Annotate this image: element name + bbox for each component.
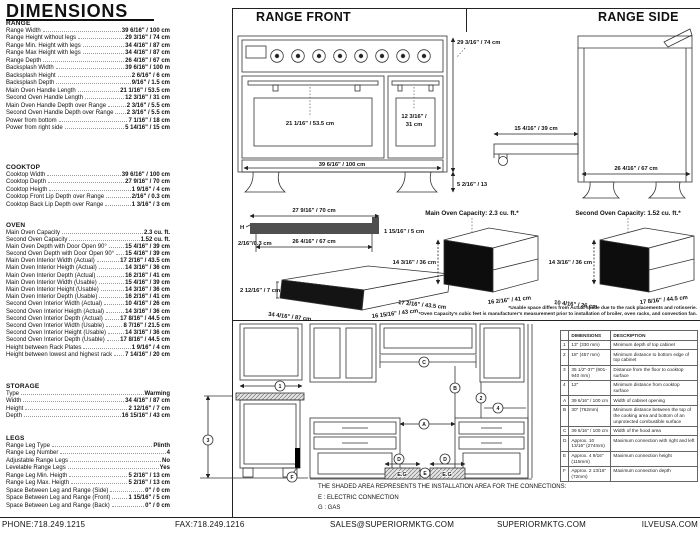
installation-note: THE SHADED AREA REPRESENTS THE INSTALLAT… (318, 484, 566, 490)
spec-value: 15 4/16" / 39 cm (125, 280, 170, 287)
drawer-height-label: 2 12/16" / 7 cm (240, 288, 280, 294)
spec-label: Space Between Leg and Range (Side) (6, 488, 108, 496)
spec-value: 34 4/16" / 87 cm (125, 43, 170, 51)
spec-label: Backsplash Width (6, 65, 54, 73)
spec-label: Second Oven Depth with Door Open 90° (6, 251, 114, 258)
spec-label: Range Min. Height with legs (6, 43, 81, 51)
spec-value: 4 (167, 450, 170, 458)
second-oven-capacity-diagram: Second Oven Capacity: 1.52 cu. ft.* 14 3… (548, 206, 700, 314)
spec-row: Range Min. Height with legs34 4/16" / 87… (6, 43, 170, 51)
spec-label: Main Oven Interior Height (Usable) (6, 287, 99, 294)
spec-row: Cooktop Back Lip Depth over Range1 3/16"… (6, 202, 170, 210)
dotted-leader (68, 468, 159, 469)
range-side-title: RANGE SIDE (598, 10, 679, 24)
spec-value: 14 3/16" / 36 cm (125, 309, 170, 316)
dotted-leader (25, 409, 127, 410)
range-front-diagram: 21 1/16" / 53.5 cm 12 3/16" / 31 cm 39 6… (237, 30, 507, 208)
dotted-leader (105, 319, 119, 320)
spec-label: Type (6, 391, 19, 399)
spec-row: Main Oven Depth with Door Open 90°15 4/1… (6, 244, 170, 251)
spec-label: Main Oven Interior Heigth (Actual) (6, 265, 97, 272)
main-handle-length-label: 21 1/16" / 53.5 cm (286, 121, 334, 127)
dotted-leader (78, 91, 119, 92)
marker-d-right: D (443, 457, 447, 463)
spec-row: Main Oven Interior Depth (Actual)16 2/16… (6, 273, 170, 280)
dotted-leader (78, 38, 124, 39)
spec-value: 21 1/16" / 53.5 cm (120, 88, 170, 96)
dotted-leader (112, 498, 127, 499)
spec-sheet-page: DIMENSIONS RANGERange Width39 6/16" / 10… (0, 0, 700, 534)
main-oven-capacity-title: Main Oven Capacity: 2.3 cu. ft.* (425, 210, 519, 217)
main-oven-height-label: 14 3/16" / 36 cm (393, 260, 436, 266)
table-row: 113" (330 mm)Minimum depth of top cabine… (561, 340, 698, 350)
marker-f: F (290, 475, 293, 481)
table-cell: Maximum connection height (611, 451, 698, 466)
table-header-row: DIMENSIONSDESCRIPTION (561, 331, 698, 341)
table-cell: 4 (561, 380, 569, 395)
footer-fax: FAX:718.249.1216 (175, 520, 244, 529)
spec-label: Second Oven Interior Width (Actual) (6, 301, 102, 308)
spec-label: Cooktop Heigth (6, 187, 47, 195)
spec-value: 17 8/16" / 44.5 cm (120, 337, 170, 344)
footer-rule (0, 517, 700, 518)
table-cell: Approx. 10 13/16" (274mm) (569, 436, 611, 451)
backsplash-shape (664, 29, 692, 47)
spec-label: Main Oven Capacity (6, 230, 60, 237)
spec-row: Cooktop Heigth1 9/16" / 4 cm (6, 187, 170, 195)
dotted-leader (83, 46, 124, 47)
table-header-cell: DESCRIPTION (611, 331, 698, 341)
spec-value: 5 14/16" / 15 cm (125, 125, 170, 133)
spec-row: Power from bottom7 1/16" / 18 cm (6, 118, 170, 126)
spec-row: Adjustable Range LegsNo (6, 458, 170, 466)
spec-section-range: RANGERange Width39 6/16" / 100 cmRange H… (6, 20, 170, 133)
dotted-leader (21, 394, 144, 395)
dotted-leader (65, 128, 124, 129)
cooktop-h-label: H (240, 225, 244, 231)
spec-label: Range Leg Type (6, 443, 50, 451)
spec-row: Second Oven Capacity1.52 cu. ft. (6, 237, 170, 244)
spec-label: Range Leg Min. Heigth (6, 473, 67, 481)
installation-dimensions-table: DIMENSIONSDESCRIPTION 113" (330 mm)Minim… (560, 330, 698, 482)
spec-label: Levelable Range Legs (6, 465, 66, 473)
spec-value: 1.52 cu. ft. (141, 237, 170, 244)
spec-row: Backsplash Height2 6/16" / 6 cm (6, 73, 170, 81)
spec-row: Main Oven Capacity2.3 cu. ft. (6, 230, 170, 237)
dotted-leader (108, 106, 126, 107)
table-cell: A (561, 396, 569, 406)
spec-value: 0" / 0 cm (145, 503, 170, 511)
spec-label: Cooktop Depth (6, 179, 46, 187)
cooktop-slab (250, 223, 372, 234)
spec-label: Height between lowest and highest rack (6, 352, 112, 359)
spec-label: Second Oven Interior Depth (Usable) (6, 337, 105, 344)
spec-value: 1 9/16" / 4 cm (132, 187, 170, 195)
table-cell: Minimum distance to bottom edge of top c… (611, 350, 698, 365)
spec-value: 1 3/16" / 3 cm (132, 202, 170, 210)
spec-label: Adjustable Range Legs (6, 458, 68, 466)
footer-website[interactable]: SUPERIORMKTG.COM (497, 520, 586, 529)
spec-value: 9/16" / 1.5 cm (132, 80, 170, 88)
table-cell: 12" (569, 380, 611, 395)
marker-2: 2 (480, 396, 483, 402)
dotted-leader (99, 297, 124, 298)
spec-value: 2 6/16" / 6 cm (132, 73, 170, 81)
spec-label: Backsplash Height (6, 73, 56, 81)
table-cell: C (561, 426, 569, 436)
table-cell: 1 (561, 340, 569, 350)
spec-label: Cooktop Front Lip Depth over Range (6, 194, 104, 202)
spec-label: Range Leg Number (6, 450, 58, 458)
cooktop-front-lip-label: 2/16"/0.3 cm (238, 241, 272, 247)
connection-area-marker (295, 448, 300, 468)
marker-a: A (422, 422, 426, 428)
table-cell: Width of cabinet opening (611, 396, 698, 406)
spec-label: Range Leg Max. Heigth (6, 480, 69, 488)
dotted-leader (107, 340, 119, 341)
table-row: 218" (457 mm)Minimum distance to bottom … (561, 350, 698, 365)
second-oven-depth-label: 17 8/16" / 44.5 cm (640, 295, 689, 306)
spec-value: Yes (160, 465, 170, 473)
spec-value: 2 3/16" / 5.5 cm (127, 110, 170, 118)
spec-row: Range Leg Min. Heigth5 2/16" / 13 cm (6, 473, 170, 481)
dotted-leader (24, 416, 121, 417)
spec-value: 26 4/16" / 67 cm (125, 58, 170, 66)
table-cell: 39 6/16" / 100 cm (569, 396, 611, 406)
spec-value: 34 4/16" / 87 cm (125, 50, 170, 58)
table-row: B30" (762mm)Minimum distance between the… (561, 405, 698, 426)
spec-value: 16 2/16" / 41 cm (125, 273, 170, 280)
dotted-leader (99, 268, 124, 269)
dotted-leader (109, 247, 124, 248)
dotted-leader (97, 261, 119, 262)
spec-label: Space Between Leg and Range (Back) (6, 503, 110, 511)
marker-1: 1 (279, 384, 282, 390)
spec-row: Second Oven Interior Heigth (Actual)14 3… (6, 309, 170, 316)
table-cell: 39 6/16" / 100 cm (569, 426, 611, 436)
spec-value: 39 6/16" / 100 cm (122, 28, 170, 36)
spec-value: Warming (145, 391, 170, 399)
spec-label: Power from bottom (6, 118, 57, 126)
marker-d-left: D (397, 457, 401, 463)
spec-label: Backsplash Depth (6, 80, 54, 88)
dotted-leader (106, 197, 131, 198)
dotted-leader (97, 276, 124, 277)
spec-row: Second Oven Depth with Door Open 90°15 4… (6, 251, 170, 258)
table-cell: 18" (457 mm) (569, 350, 611, 365)
table-row: 335 1/2"-37" (901-940 mm)Distance from t… (561, 365, 698, 380)
footer-brand-site[interactable]: ILVEUSA.COM (642, 520, 698, 529)
dotted-leader (62, 233, 143, 234)
spec-label: Main Oven Depth with Door Open 90° (6, 244, 107, 251)
spec-value: 17 2/16" / 43.5 cm (120, 258, 170, 265)
table-cell: 2 (561, 350, 569, 365)
spec-label: Second Oven Interior Depth (Actual) (6, 316, 103, 323)
spec-label: Space Between Leg and Range (Front) (6, 495, 110, 503)
spec-row: Height between Rack Plates1 9/16" / 4 cm (6, 345, 170, 352)
spec-section-title: OVEN (6, 222, 170, 230)
installation-front-view (310, 324, 532, 479)
table-cell: Minimum distance between the top of the … (611, 405, 698, 426)
front-left-leg (245, 172, 285, 192)
second-door-width-label: 12 3/16" / (401, 114, 427, 120)
spec-label: Height (6, 406, 23, 414)
dotted-leader (71, 483, 127, 484)
spec-label: Second Oven Capacity (6, 237, 67, 244)
spec-label: Range Max Height with legs (6, 50, 81, 58)
spec-value: 39 6/16" / 100 cm (122, 172, 170, 180)
dotted-leader (112, 506, 144, 507)
installation-diagram: E.G E.G 3 1 C B 2 4 A D D E F (196, 322, 540, 482)
spec-label: Range Height without legs (6, 35, 76, 43)
marker-b: B (453, 386, 457, 392)
spec-value: 15 4/16" / 39 cm (125, 244, 170, 251)
spec-section-title: RANGE (6, 20, 170, 28)
spec-value: Plinth (153, 443, 170, 451)
spec-label: Main Oven Interior Depth (Usable) (6, 294, 97, 301)
spec-value: 1 9/16" / 4 cm (132, 345, 170, 352)
dotted-leader (106, 326, 122, 327)
side-front-leg (583, 182, 619, 198)
dotted-leader (52, 446, 152, 447)
spec-row: Second Oven Interior Width (Usable)8 7/1… (6, 323, 170, 330)
installation-side-view (200, 324, 308, 478)
dotted-leader (56, 68, 124, 69)
table-cell: Distance from the floor to cooktop surfa… (611, 365, 698, 380)
spec-value: 7 1/16" / 18 cm (128, 118, 170, 126)
table-cell: 35 1/2"-37" (901-940 mm) (569, 365, 611, 380)
cooktop-back-lip (372, 217, 379, 234)
dotted-leader (43, 31, 121, 32)
legend-electric: E : ELECTRIC CONNECTION (318, 495, 399, 501)
marker-4: 4 (497, 406, 500, 412)
spec-row: Backsplash Width39 6/16" / 100 m (6, 65, 170, 73)
table-cell: Minimum distance from cooktop surface (611, 380, 698, 395)
eg-label-right: E.G (442, 472, 451, 478)
spec-row: Space Between Leg and Range (Front)1 15/… (6, 495, 170, 503)
table-cell: D (561, 436, 569, 451)
spec-label: Second Oven Handle Length (6, 95, 83, 103)
marker-c: C (422, 360, 426, 366)
spec-row: Space Between Leg and Range (Back)0" / 0… (6, 503, 170, 511)
dotted-leader (110, 491, 144, 492)
table-cell: Approx. 2 13/16" (72mm) (569, 466, 611, 481)
dotted-leader (56, 83, 130, 84)
spec-value: 14 3/16" / 36 cm (125, 265, 170, 272)
range-front-title: RANGE FRONT (256, 10, 351, 24)
second-oven-height-label: 14 3/16" / 36 cm (549, 260, 592, 266)
dotted-leader (104, 304, 124, 305)
spec-label: Second Oven Interior Heigth (Actual) (6, 309, 104, 316)
spec-value: 34 4/16" / 87 cm (125, 398, 170, 406)
second-door-width-label2: 31 cm (406, 122, 422, 128)
spec-row: Range Height without legs29 3/16" / 74 c… (6, 35, 170, 43)
spec-row: Second Oven Interior Height (Usable)14 3… (6, 330, 170, 337)
spec-label: Width (6, 398, 21, 406)
spec-label: Second Oven Interior Width (Usable) (6, 323, 104, 330)
spec-label: Main Oven Handle Length (6, 88, 76, 96)
table-row: EApprox. 4 9/16" (115mm)Maximum connecti… (561, 451, 698, 466)
oven-footnotes: *Usable space differs from Actual space … (307, 306, 697, 318)
spec-row: TypeWarming (6, 391, 170, 399)
marker-3: 3 (207, 438, 210, 444)
spec-row: Second Oven Handle Depth over Range2 3/1… (6, 110, 170, 118)
spec-row: Width34 4/16" / 87 cm (6, 398, 170, 406)
eg-label-left: E.G (397, 472, 406, 478)
front-right-leg (397, 172, 437, 192)
spec-row: Height2 12/16" / 7 cm (6, 406, 170, 414)
table-cell: Minimum depth of top cabinet (611, 340, 698, 350)
spec-row: Range Max Height with legs34 4/16" / 87 … (6, 50, 170, 58)
spec-row: Height between lowest and highest rack7 … (6, 352, 170, 359)
footnote-oven-capacity: *Oven Capacity's cubic feet is manufactu… (307, 312, 697, 318)
table-header-cell (561, 331, 569, 341)
spec-row: Second Oven Interior Depth (Actual)17 8/… (6, 316, 170, 323)
open-door-shelf (494, 144, 578, 154)
table-cell: Width of the hood area (611, 426, 698, 436)
spec-row: Space Between Leg and Range (Side)0" / 0… (6, 488, 170, 496)
spec-label: Cooktop Back Lip Depth over Range (6, 202, 103, 210)
hood-box (380, 324, 476, 354)
table-cell: 13" (330 mm) (569, 340, 611, 350)
spec-row: Main Oven Interior Heigth (Actual)14 3/1… (6, 265, 170, 272)
spec-section-title: COOKTOP (6, 164, 170, 172)
spec-value: 17 8/16" / 44.5 cm (120, 316, 170, 323)
dotted-leader (116, 254, 124, 255)
table-cell: F (561, 466, 569, 481)
spec-row: Second Oven Handle Length12 3/16" / 31 c… (6, 95, 170, 103)
dotted-leader (85, 98, 124, 99)
dotted-leader (105, 205, 130, 206)
dotted-leader (69, 240, 139, 241)
dotted-leader (83, 53, 124, 54)
spec-section-cooktop: COOKTOPCooktop Width39 6/16" / 100 cmCoo… (6, 164, 170, 209)
spec-label: Main Oven Handle Depth over Range (6, 103, 106, 111)
spec-value: 29 3/16" / 74 cm (125, 35, 170, 43)
table-cell: B (561, 405, 569, 426)
spec-row: Main Oven Interior Height (Usable)14 3/1… (6, 287, 170, 294)
main-oven-depth-label: 16 2/16" / 41 cm (488, 295, 532, 305)
main-oven-dark-face (444, 240, 493, 292)
spec-section-title: STORAGE (6, 383, 170, 391)
table-cell: 30" (762mm) (569, 405, 611, 426)
spec-row: Range Leg Max. Heigth5 2/16" / 13 cm (6, 480, 170, 488)
spec-label: Range Depth (6, 58, 41, 66)
legend-gas: G : GAS (318, 505, 340, 511)
burner-knob-icons (271, 50, 431, 63)
spec-value: 39 6/16" / 100 m (125, 65, 170, 73)
table-cell: Approx. 4 9/16" (115mm) (569, 451, 611, 466)
spec-row: Main Oven Interior Width (Usable)15 4/16… (6, 280, 170, 287)
dotted-leader (60, 453, 165, 454)
spec-value: 5 2/16" / 13 cm (128, 480, 170, 488)
spec-row: Cooktop Width39 6/16" / 100 cm (6, 172, 170, 180)
spec-label: Range Width (6, 28, 41, 36)
dotted-leader (43, 61, 124, 62)
spec-value: 7 14/16" / 20 cm (125, 352, 170, 359)
spec-value: 1 15/16" / 5 cm (128, 495, 170, 503)
table-cell: Maximum connection depth (611, 466, 698, 481)
spec-row: Second Oven Interior Depth (Usable)17 8/… (6, 337, 170, 344)
spec-label: Cooktop Width (6, 172, 45, 180)
dotted-leader (49, 190, 130, 191)
spec-section-oven: OVENMain Oven Capacity2.3 cu. ft.Second … (6, 222, 170, 359)
dotted-leader (115, 113, 125, 114)
spec-label: Second Oven Interior Height (Usable) (6, 330, 106, 337)
spec-value: 27 9/16" / 70 cm (125, 179, 170, 187)
spec-row: Range Width39 6/16" / 100 cm (6, 28, 170, 36)
footer-phone: PHONE:718.249.1215 (2, 520, 85, 529)
table-cell: 3 (561, 365, 569, 380)
spec-label: Height between Rack Plates (6, 345, 81, 352)
range-side-outline (494, 29, 692, 198)
spec-row: Power from right side5 14/16" / 15 cm (6, 125, 170, 133)
dotted-leader (58, 76, 131, 77)
dotted-leader (108, 333, 124, 334)
spec-value: 16 15/16" / 43 cm (122, 413, 170, 421)
door-hinge-wheel (499, 157, 508, 166)
range-depth-label: 26 4/16" / 67 cm (614, 166, 657, 172)
spec-label: Main Oven Interior Width (Actual) (6, 258, 95, 265)
spec-row: Main Oven Handle Depth over Range2 3/16"… (6, 103, 170, 111)
spec-value: 2 3/16" / 5.5 cm (127, 103, 170, 111)
front-side-divider (466, 8, 467, 32)
table-cell: E (561, 451, 569, 466)
dotted-leader (106, 312, 124, 313)
cooktop-inner-depth-label: 26 4/16" / 67 cm (292, 239, 335, 245)
dotted-leader (59, 121, 128, 122)
spec-label: Main Oven Interior Width (Usable) (6, 280, 97, 287)
spec-value: 0" / 0 cm (145, 488, 170, 496)
spec-value: 16 2/16" / 41 cm (125, 294, 170, 301)
second-oven-capacity-title: Second Oven Capacity: 1.52 cu. ft.* (575, 210, 681, 217)
spec-value: 2.3 cu. ft. (144, 230, 170, 237)
table-header-cell: DIMENSIONS (569, 331, 611, 341)
spec-value: 5 2/16" / 13 cm (128, 473, 170, 481)
dotted-leader (114, 355, 124, 356)
footer-email[interactable]: SALES@SUPERIORMKTG.COM (330, 520, 454, 529)
spec-row: Cooktop Depth27 9/16" / 70 cm (6, 179, 170, 187)
table-row: A39 6/16" / 100 cmWidth of cabinet openi… (561, 396, 698, 406)
table-cell: Maximum connection with right and left (611, 436, 698, 451)
main-oven-capacity-diagram: Main Oven Capacity: 2.3 cu. ft.* 14 3/16… (392, 206, 544, 314)
spec-value: No (162, 458, 170, 466)
spec-row: Depth16 15/16" / 43 cm (6, 413, 170, 421)
table-row: DApprox. 10 13/16" (274mm)Maximum connec… (561, 436, 698, 451)
range-width-label: 39 6/16" / 100 cm (319, 162, 366, 168)
spec-value: 2/16" / 0.3 cm (132, 194, 170, 202)
spec-row: Range Leg TypePlinth (6, 443, 170, 451)
spec-value: 8 7/16" / 21.5 cm (123, 323, 170, 330)
door-open-depth-label: 15 4/16" / 39 cm (514, 126, 557, 132)
spec-row: Levelable Range LegsYes (6, 465, 170, 473)
spec-row: Main Oven Interior Width (Actual)17 2/16… (6, 258, 170, 265)
spec-label: Main Oven Interior Depth (Actual) (6, 273, 95, 280)
spec-label: Power from right side (6, 125, 63, 133)
dotted-leader (83, 348, 130, 349)
spec-value: 12 3/16" / 31 cm (125, 95, 170, 103)
spec-section-title: LEGS (6, 435, 170, 443)
dotted-leader (48, 182, 124, 183)
dotted-leader (101, 290, 124, 291)
spec-row: Backsplash Depth9/16" / 1.5 cm (6, 80, 170, 88)
spec-label: Depth (6, 413, 22, 421)
spec-value: 2 12/16" / 7 cm (128, 406, 170, 414)
dotted-leader (70, 461, 161, 462)
dotted-leader (47, 175, 120, 176)
table-row: 412"Minimum distance from cooktop surfac… (561, 380, 698, 395)
side-back-leg (649, 182, 685, 198)
